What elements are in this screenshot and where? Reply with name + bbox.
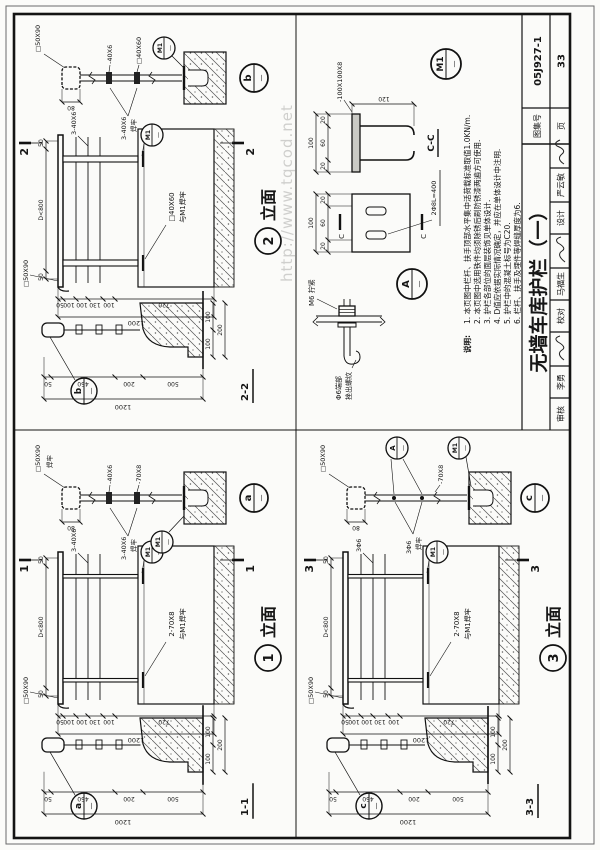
- scanned-drawing-page: http://www.tqcod.net 1200 50 450 200 500…: [0, 0, 600, 850]
- dim: 100: [348, 718, 360, 725]
- notes-heading: 说明:: [462, 335, 472, 353]
- dim: 100: [205, 753, 212, 765]
- dim-total: 1200: [413, 736, 430, 744]
- dim: 500: [167, 380, 179, 387]
- dim: D<800: [323, 616, 330, 637]
- note-item: 3. 护栏各部位的面层装饰见单体设计.: [482, 200, 492, 324]
- bar-label: -40X6: [106, 465, 114, 484]
- rails-label: 3-40X6: [70, 112, 78, 135]
- cap-weld-label: 焊牢: [45, 455, 54, 469]
- drawing-canvas: http://www.tqcod.net 1200 50 450 200 500…: [0, 0, 600, 850]
- svg-text:2: 2: [262, 236, 277, 245]
- weld-label2: 焊牢: [414, 537, 423, 551]
- signer-label: 设计: [556, 210, 566, 226]
- svg-text:3: 3: [547, 653, 562, 662]
- dim: 100: [63, 718, 75, 725]
- nut-label: M6 拧紧: [307, 279, 316, 306]
- detail-bubble-c: c —: [521, 484, 549, 512]
- dim: 100: [103, 301, 115, 308]
- svg-text:M1: M1: [155, 537, 162, 547]
- handrail-label: □50X90: [307, 677, 315, 704]
- a-bolt-detail-figure: M6 拧紧 Φ6端部 挫出螺纹 A —: [307, 269, 427, 400]
- signer-name: 严云敏: [556, 173, 566, 197]
- bolt-bubble-A: A —: [386, 437, 422, 494]
- cap-label: □50X90: [319, 445, 327, 472]
- dim: 100: [490, 753, 497, 765]
- note-item: 6. 栏杆、扶手及埋件等焊缝厚度为6.: [512, 202, 522, 324]
- weld-label: 3-40X6: [120, 117, 128, 140]
- detail-bubble-a: a —: [240, 484, 268, 512]
- section-name: 3-3: [525, 798, 536, 816]
- bar-label: -70X8: [135, 465, 143, 484]
- svg-text:a: a: [74, 803, 84, 809]
- post-weld-label: 与M1焊牢: [178, 191, 187, 223]
- cap-label: □50X90: [34, 25, 42, 52]
- bar-label: -40X6: [106, 45, 114, 64]
- dim: 100: [308, 217, 315, 229]
- detail-bubble-c: c —: [335, 752, 382, 819]
- svg-text:—: —: [257, 75, 265, 82]
- svg-text:—: —: [440, 549, 447, 555]
- bar-label: -70X8: [437, 465, 445, 484]
- plate-label: -100X100X8: [336, 62, 344, 102]
- section-name: 2-2: [240, 383, 251, 401]
- svg-text:—: —: [167, 45, 174, 51]
- dim: 80: [352, 524, 360, 531]
- dim: 720: [158, 718, 170, 725]
- bar-label: □40X60: [135, 37, 143, 64]
- dim: 130: [374, 718, 386, 725]
- note-item: 2. 本页图中选用铁件均须除锈后刷防锈漆两遍方可使用.: [472, 140, 482, 324]
- elevation-1-figure: 50 D<800 50 □50X90 1 1 3-40X6 2-70X8 与M1…: [18, 529, 281, 744]
- elevation-3-figure: 50 D<800 50 □50X90 3 3 3Φ6 2-70X8 与M1焊牢: [303, 539, 566, 744]
- dim: 200: [502, 739, 509, 751]
- dim: 500: [452, 795, 464, 802]
- svg-text:2: 2: [18, 148, 31, 156]
- svg-text:立面: 立面: [259, 606, 278, 638]
- svg-text:1: 1: [244, 565, 257, 573]
- svg-text:—: —: [87, 388, 95, 395]
- svg-text:1: 1: [262, 653, 277, 662]
- weld-label: 3-40X6: [120, 537, 128, 560]
- svg-text:—: —: [415, 281, 423, 288]
- dim: 50: [44, 795, 52, 802]
- watermark-text: http://www.tqcod.net: [278, 104, 296, 282]
- svg-text:A: A: [389, 445, 397, 451]
- dim: 20: [320, 162, 327, 170]
- detail-bubble-a: a —: [50, 752, 97, 819]
- cut-letter: C: [420, 234, 428, 239]
- svg-text:3: 3: [529, 565, 542, 573]
- detail-c-figure: □50X90 80 A — -70X8 3Φ6 焊牢 M1 —: [319, 437, 549, 554]
- weld-label2: 焊牢: [129, 539, 138, 553]
- title-block: 无墙车库护栏（一） 审核 李勇 校对 马福生 设计 严云敏 图集号 05J927…: [522, 14, 570, 430]
- svg-text:—: —: [372, 803, 380, 810]
- dim: D<800: [38, 616, 45, 637]
- rod-label2: 挫出螺纹: [344, 372, 353, 400]
- svg-text:M1: M1: [430, 547, 437, 557]
- cut-letter: C: [338, 234, 346, 239]
- svg-text:1: 1: [18, 565, 31, 573]
- dim: 100: [205, 338, 212, 350]
- dim: 50: [341, 718, 349, 725]
- dim: D<800: [38, 199, 45, 220]
- svg-text:3: 3: [303, 565, 316, 573]
- svg-text:—: —: [257, 495, 265, 502]
- dim: 100: [388, 718, 400, 725]
- svg-text:M1: M1: [145, 130, 152, 140]
- svg-text:—: —: [462, 445, 469, 451]
- svg-text:a: a: [243, 495, 254, 502]
- svg-text:M1: M1: [436, 56, 446, 71]
- section-name: 1-1: [240, 798, 251, 816]
- landscape-sheet: http://www.tqcod.net 1200 50 450 200 500…: [0, 0, 600, 850]
- dim: 720: [443, 718, 455, 725]
- dim: 20: [320, 196, 327, 204]
- svg-text:b: b: [74, 387, 84, 394]
- svg-text:—: —: [87, 803, 95, 810]
- dim: 20: [320, 116, 327, 124]
- dim: 500: [167, 795, 179, 802]
- post-weld-label: 与M1焊牢: [463, 608, 472, 640]
- svg-text:c: c: [359, 803, 369, 808]
- rails-label: 3Φ6: [355, 539, 363, 552]
- post-label: □40X60: [168, 192, 176, 221]
- signature-scribble: [556, 336, 564, 360]
- section-name: C-C: [427, 134, 437, 152]
- m1-embed-detail-figure: 100 20 60 20 C C 2Φ8L=400 100 20 60 20 1…: [308, 49, 461, 252]
- svg-text:M1: M1: [157, 43, 164, 53]
- elevation-2-figure: 50 D<800 50 □50X90 2 2 3-40X6 □40X60 与M1…: [18, 112, 281, 327]
- sheet-title: 无墙车库护栏（一）: [527, 201, 550, 372]
- notes-block: 说明: 1. 本页图中栏杆、扶手顶部水平集中活荷载标准取值1.0KN/m. 2.…: [462, 115, 522, 353]
- dim: 720: [158, 301, 170, 308]
- dim: 100: [76, 718, 88, 725]
- dim: 130: [89, 301, 101, 308]
- dim: 100: [490, 726, 497, 738]
- dim: 450: [77, 380, 89, 387]
- anchor-label: 2Φ8L=400: [430, 181, 438, 216]
- dim: 120: [378, 95, 390, 102]
- dim: 130: [89, 718, 101, 725]
- dim: 100: [103, 718, 115, 725]
- rails-label: 3-40X6: [70, 529, 78, 552]
- handrail-label: □50X90: [22, 677, 30, 704]
- signer-label: 审核: [556, 406, 566, 422]
- dim: 60: [320, 219, 327, 227]
- atlas-number: 05J927-1: [533, 36, 544, 86]
- dim: 200: [217, 739, 224, 751]
- signer-name: 马福生: [556, 272, 566, 296]
- svg-text:立面: 立面: [544, 606, 563, 638]
- note-item: 5. 护栏中的混凝土标号为C20.: [502, 222, 512, 324]
- svg-text:—: —: [450, 61, 458, 68]
- signature-scribble: [557, 237, 565, 262]
- page-number: 33: [557, 54, 568, 68]
- svg-text:M1: M1: [145, 547, 152, 557]
- elevation-title: 3 立面: [540, 606, 566, 671]
- dim: 80: [67, 104, 75, 111]
- svg-text:A: A: [401, 280, 412, 288]
- note-item: 4. D值应依据实际情况确定，并应在单体设计中注明.: [492, 149, 502, 324]
- dim-total: 1200: [115, 403, 132, 411]
- svg-text:M1: M1: [452, 443, 459, 453]
- svg-text:—: —: [155, 132, 162, 138]
- dim: 450: [77, 795, 89, 802]
- svg-text:2: 2: [244, 148, 257, 156]
- dim: 100: [205, 726, 212, 738]
- section-2-2-figure: 1200 50 450 200 500 100 100 200: [42, 291, 253, 411]
- embed-bubble-m1: M1 —: [153, 37, 184, 68]
- svg-text:b: b: [243, 74, 254, 81]
- svg-text:c: c: [524, 495, 535, 501]
- dim: 100: [361, 718, 373, 725]
- svg-text:—: —: [165, 539, 172, 545]
- post-weld-label: 与M1焊牢: [178, 608, 187, 640]
- weld-label: 3Φ6: [405, 541, 413, 554]
- dim: 50: [44, 380, 52, 387]
- detail-bubble-b: b —: [50, 337, 97, 404]
- dim: 60: [320, 139, 327, 147]
- dim: 20: [320, 242, 327, 250]
- detail-bubble-b: b —: [240, 64, 268, 92]
- handrail-label: □50X90: [22, 260, 30, 287]
- elevation-title: 1 立面: [255, 606, 281, 671]
- dim-total: 1200: [128, 736, 145, 744]
- svg-text:—: —: [538, 495, 546, 502]
- svg-text:—: —: [400, 445, 407, 451]
- dim: 50: [329, 795, 337, 802]
- rod-label: Φ6端部: [334, 376, 343, 400]
- dim: 50: [56, 718, 64, 725]
- dim: 50: [56, 301, 64, 308]
- dim: 200: [123, 380, 135, 387]
- dim: 100: [76, 301, 88, 308]
- signer-name: 李勇: [556, 374, 566, 390]
- embed-bubble-m1: M1 —: [151, 516, 184, 553]
- dim: 100: [308, 137, 315, 149]
- post-label: 2-70X8: [453, 611, 461, 636]
- embed-bubble-m1: M1 —: [448, 437, 471, 486]
- dim-total: 1200: [128, 319, 145, 327]
- detail-bubble-m1: M1 —: [431, 49, 461, 79]
- dim: 100: [63, 301, 75, 308]
- signer-label: 校对: [556, 308, 566, 324]
- post-label: 2-70X8: [168, 611, 176, 636]
- cap-label: □50X90: [34, 445, 42, 472]
- dim: 200: [217, 324, 224, 336]
- atlas-label: 图集号: [532, 114, 542, 138]
- svg-text:立面: 立面: [259, 189, 278, 221]
- dim: 450: [362, 795, 374, 802]
- dim: 80: [67, 524, 75, 531]
- weld-label2: 焊牢: [129, 119, 138, 133]
- dim-total: 1200: [400, 818, 417, 826]
- dim: 200: [123, 795, 135, 802]
- note-item: 1. 本页图中栏杆、扶手顶部水平集中活荷载标准取值1.0KN/m.: [462, 115, 472, 324]
- dim: 200: [408, 795, 420, 802]
- page-label: 页: [557, 122, 566, 130]
- dim-total: 1200: [115, 818, 132, 826]
- detail-bubble-A: A —: [397, 269, 427, 299]
